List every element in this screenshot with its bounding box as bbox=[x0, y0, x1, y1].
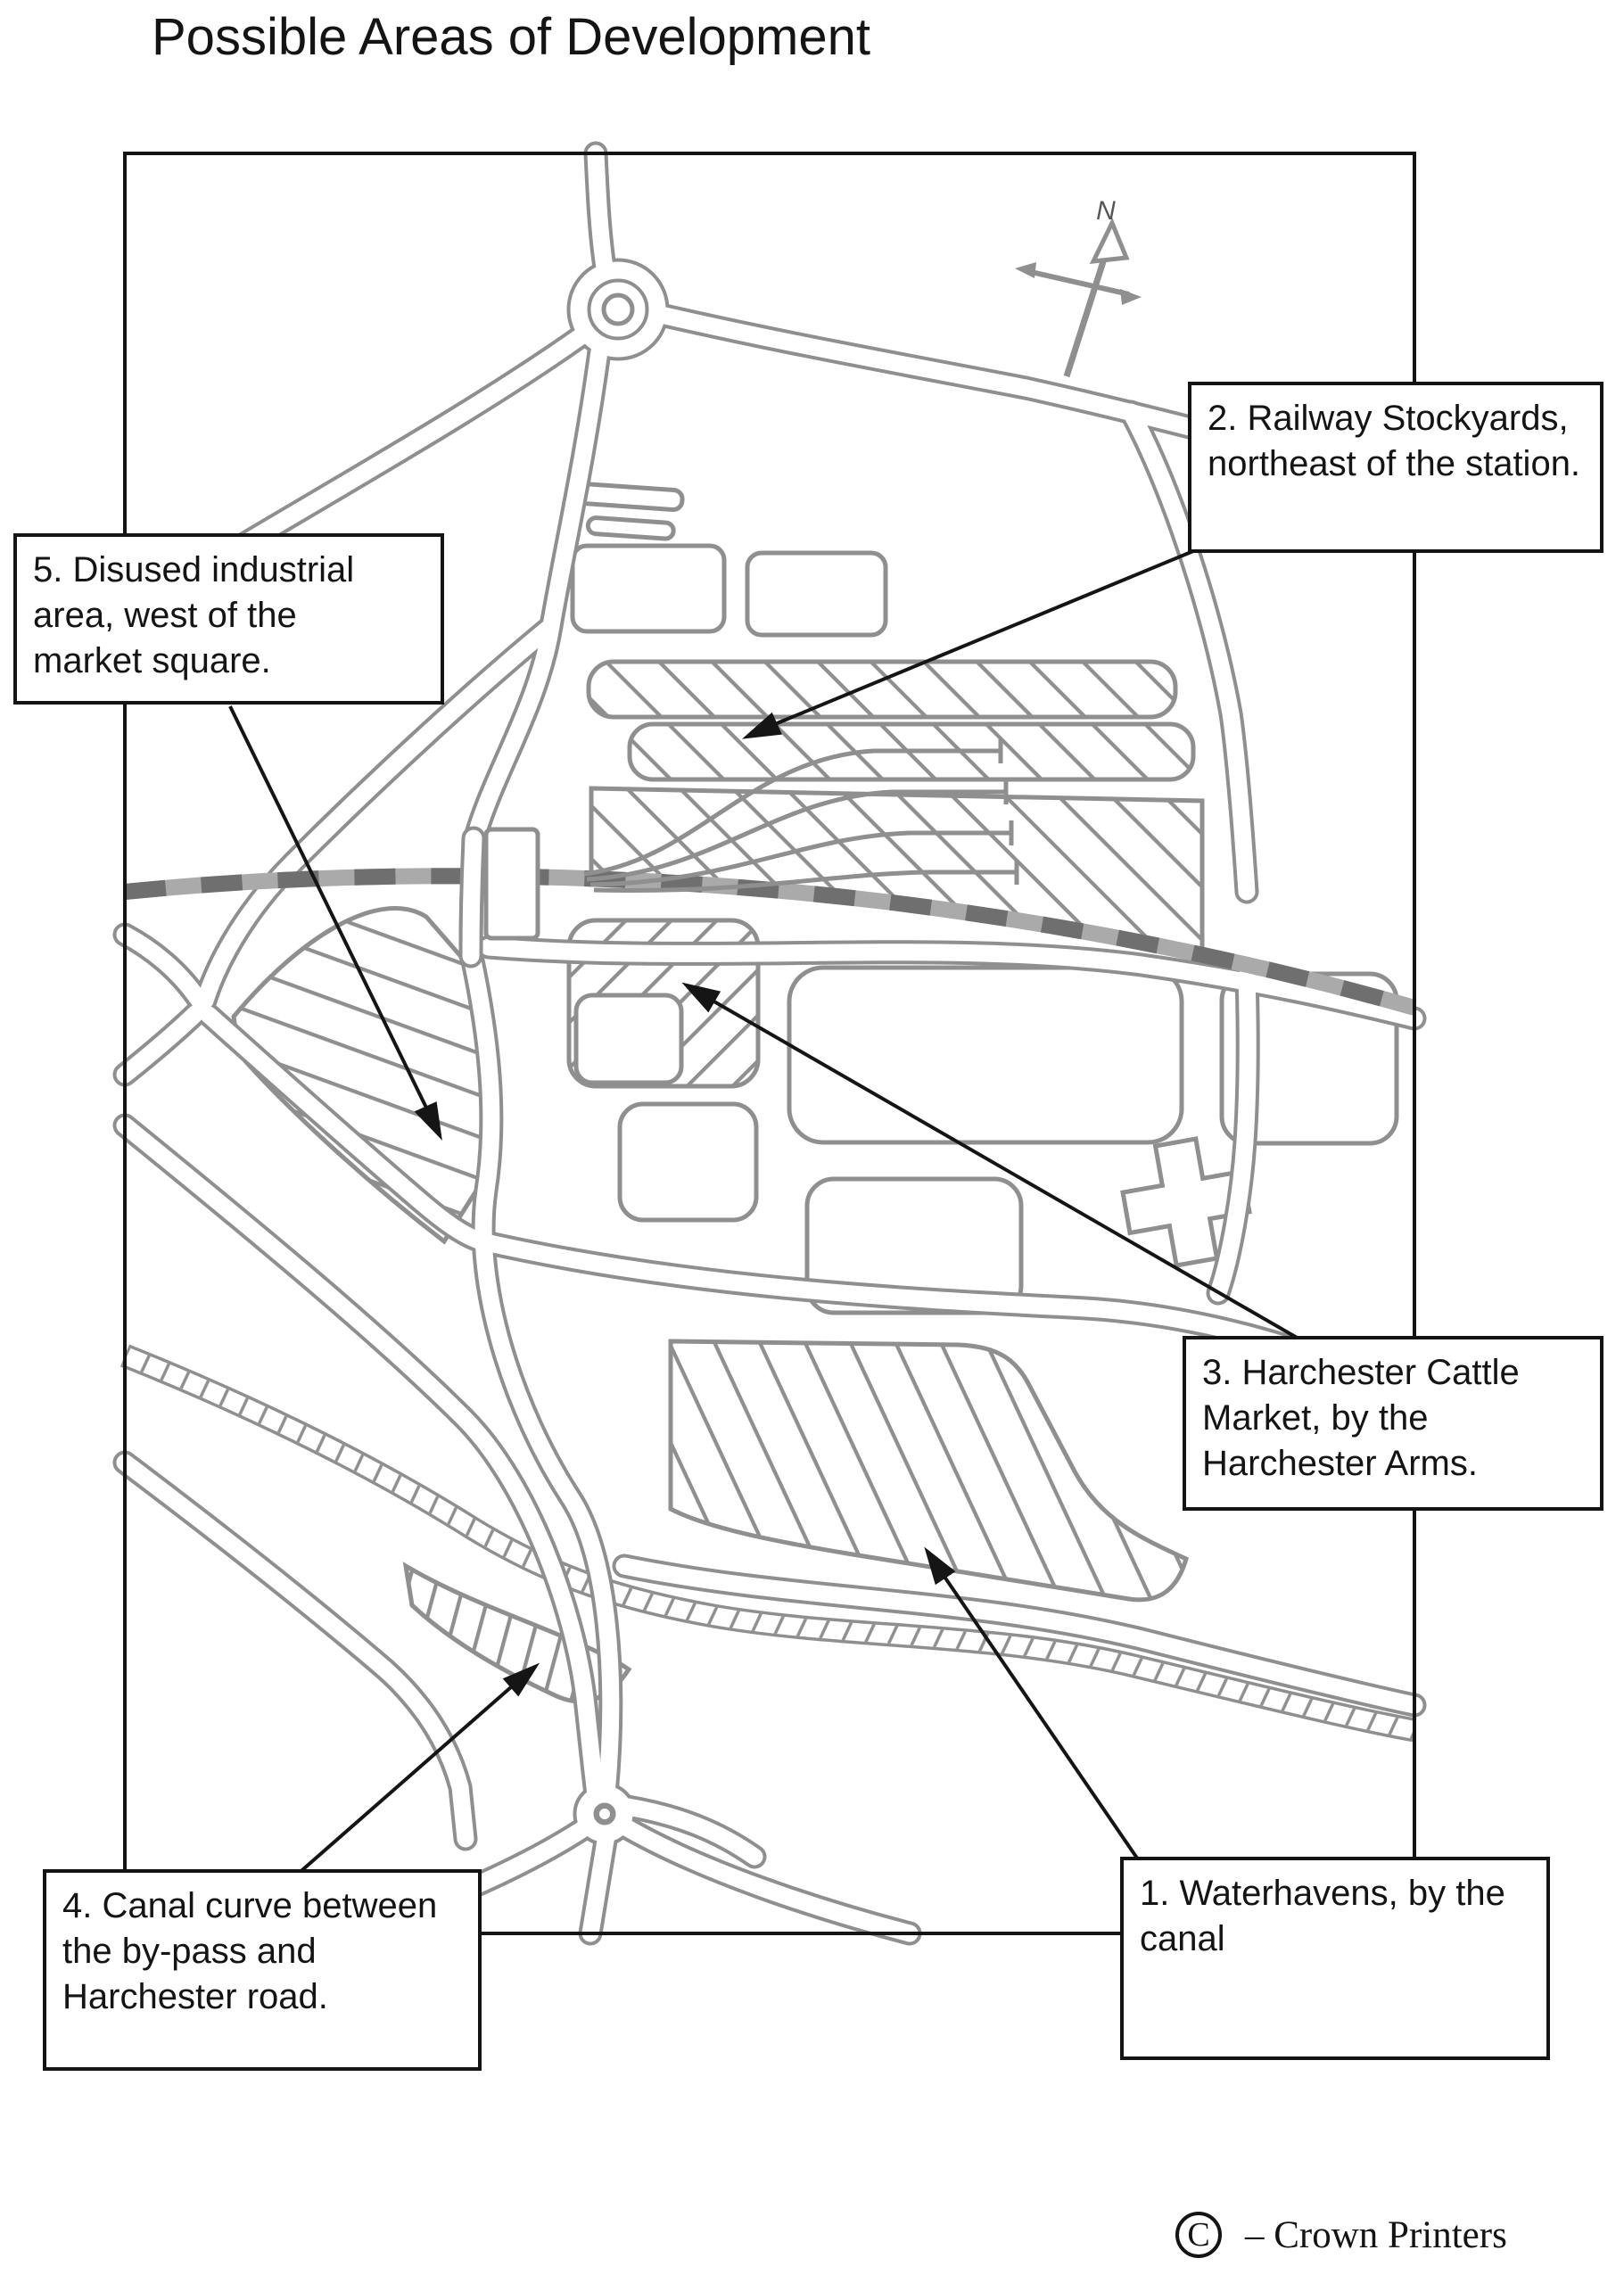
arrow-to-waterhavens bbox=[927, 1552, 1138, 1859]
east-block bbox=[789, 968, 1182, 1142]
east-tick-icon bbox=[1120, 289, 1142, 305]
north-arrow: N bbox=[1015, 196, 1142, 376]
roundabout-island bbox=[604, 295, 632, 324]
railway-bridge bbox=[471, 838, 474, 956]
annotation-box-4: 4. Canal curve between the by-pass and H… bbox=[43, 1869, 482, 2071]
station-north-building bbox=[576, 483, 682, 510]
north-arrow-head-icon bbox=[1093, 223, 1126, 261]
annotation-box-1: 1. Waterhavens, by the canal bbox=[1120, 1857, 1550, 2060]
west-tick-icon bbox=[1015, 262, 1036, 278]
southwest-road bbox=[125, 1463, 466, 1839]
station-north-block bbox=[573, 546, 724, 631]
station-north-block bbox=[747, 553, 886, 635]
scanned-map-page: { "page": { "title": "Possible Areas of … bbox=[0, 0, 1624, 2283]
annotation-box-3: 3. Harchester Cattle Market, by the Harc… bbox=[1183, 1336, 1603, 1511]
copyright-icon: C bbox=[1175, 2212, 1222, 2258]
printer-credit: C – Crown Printers bbox=[1175, 2212, 1507, 2258]
compass-north-label: N bbox=[1096, 196, 1116, 226]
station-north-building bbox=[588, 517, 674, 540]
printer-credit-text: – Crown Printers bbox=[1245, 2213, 1507, 2257]
roundabout-island bbox=[598, 1807, 612, 1821]
annotation-box-2: 2. Railway Stockyards, northeast of the … bbox=[1188, 382, 1603, 553]
station-building bbox=[486, 829, 538, 938]
market-square-block bbox=[620, 1104, 756, 1220]
harchester-arms-building bbox=[576, 995, 681, 1083]
annotation-box-5: 5. Disused industrial area, west of the … bbox=[13, 533, 444, 705]
